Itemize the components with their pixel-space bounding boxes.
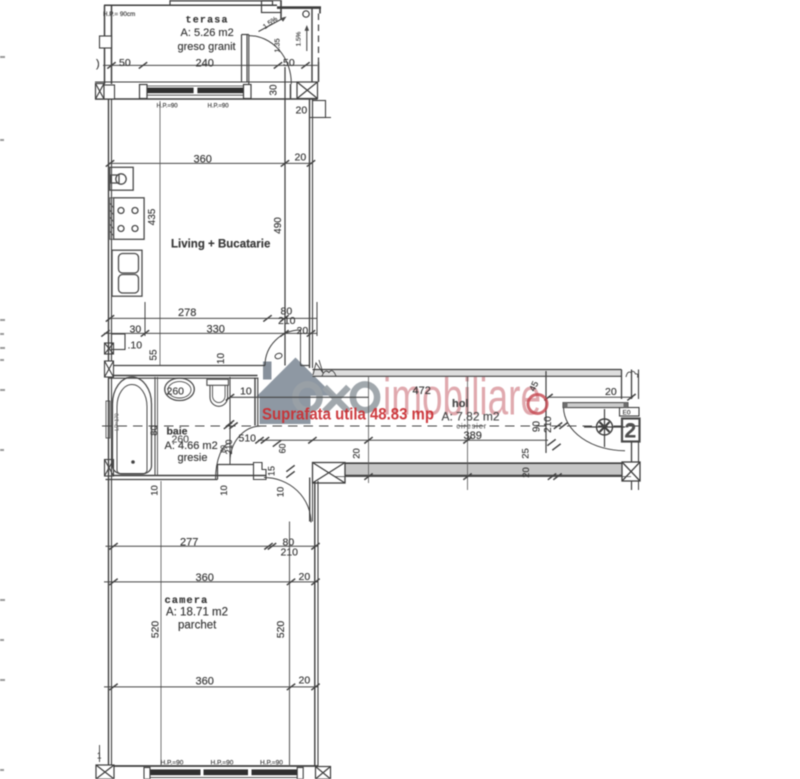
svg-text:520: 520 [275,621,287,639]
svg-text:55: 55 [149,349,160,361]
svg-text:H.P.=90: H.P.=90 [260,760,283,767]
svg-text:parchet: parchet [178,620,217,632]
svg-text:1.35: 1.35 [273,39,282,53]
svg-text:210: 210 [278,315,296,327]
svg-text:30: 30 [130,324,142,336]
svg-text:20: 20 [352,448,363,459]
svg-text:10: 10 [219,485,230,496]
svg-text:389: 389 [464,430,482,442]
svg-text:20: 20 [296,105,308,117]
svg-text:10: 10 [216,353,227,365]
svg-text:472: 472 [413,385,431,397]
svg-text:greso granit: greso granit [178,41,236,53]
svg-text:330: 330 [207,324,225,336]
svg-text:260: 260 [167,386,185,398]
svg-text:360: 360 [194,154,212,166]
svg-text:50: 50 [119,57,131,69]
svg-text:): ) [96,58,100,70]
svg-text:490: 490 [273,217,284,234]
svg-text:H.P.=90: H.P.=90 [161,760,184,767]
svg-text:360: 360 [196,676,214,688]
svg-text:20: 20 [605,386,617,398]
svg-text:435: 435 [147,208,158,225]
svg-text:20: 20 [297,325,309,337]
svg-text:510: 510 [239,433,257,445]
svg-text:hol: hol [452,398,469,410]
svg-text:A: 5.26 m2: A: 5.26 m2 [181,27,234,39]
svg-text:H.P.= 90cm: H.P.= 90cm [103,11,135,18]
svg-text:360: 360 [196,572,214,584]
svg-text:H.P.=90: H.P.=90 [211,760,234,767]
svg-text:520: 520 [150,621,162,639]
svg-text:277: 277 [180,537,198,549]
svg-text:.10: .10 [128,340,143,352]
svg-text:LP=170: LP=170 [115,413,121,431]
svg-text:E0: E0 [623,410,631,417]
svg-text:H.P.=90: H.P.=90 [157,104,179,110]
svg-text:20: 20 [521,467,532,478]
svg-text:210: 210 [281,547,299,559]
svg-text:80: 80 [149,425,160,436]
svg-text:20: 20 [299,675,311,687]
svg-text:50: 50 [283,57,295,69]
svg-text:10: 10 [276,487,287,498]
svg-text:Suprafata utila 48.83 mp: Suprafata utila 48.83 mp [262,406,434,424]
svg-text:90: 90 [532,421,543,433]
svg-text:10: 10 [150,485,161,496]
svg-text:H.P.=90: H.P.=90 [208,104,230,110]
svg-text:240: 240 [196,58,214,70]
svg-text:camera: camera [165,595,209,607]
svg-text:80: 80 [221,445,228,453]
svg-text:20: 20 [299,571,311,583]
svg-text:10: 10 [240,386,252,398]
svg-text:A: 4.66 m2: A: 4.66 m2 [165,440,218,452]
svg-text:15: 15 [267,466,277,476]
svg-text:terasa: terasa [186,16,229,27]
svg-text:60: 60 [278,443,288,453]
svg-text:1: 1 [97,752,102,761]
svg-text:20: 20 [295,152,307,164]
svg-text:278: 278 [178,307,196,319]
svg-text:Living + Bucatarie: Living + Bucatarie [171,239,270,251]
svg-text:2: 2 [625,420,637,443]
svg-text:210: 210 [543,416,554,433]
svg-text:30: 30 [269,84,280,96]
svg-text:25: 25 [521,448,532,459]
svg-text:A: 18.71 m2: A: 18.71 m2 [166,607,228,619]
svg-text:1.5%: 1.5% [296,31,303,46]
svg-text:gresie: gresie [178,452,208,464]
svg-text:A: 7.82 m2: A: 7.82 m2 [442,410,500,424]
